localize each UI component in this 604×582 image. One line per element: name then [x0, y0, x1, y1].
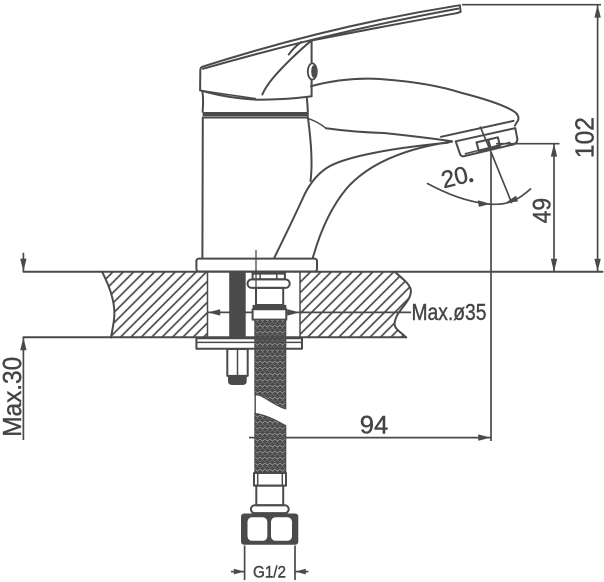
svg-text:102: 102: [570, 117, 600, 158]
svg-text:Max.30: Max.30: [0, 357, 27, 437]
svg-text:20: 20: [438, 162, 470, 195]
svg-text:94: 94: [360, 412, 389, 440]
svg-text:49: 49: [528, 198, 556, 224]
svg-text:Max.ø35: Max.ø35: [412, 299, 487, 325]
svg-text:G1/2: G1/2: [253, 564, 286, 582]
